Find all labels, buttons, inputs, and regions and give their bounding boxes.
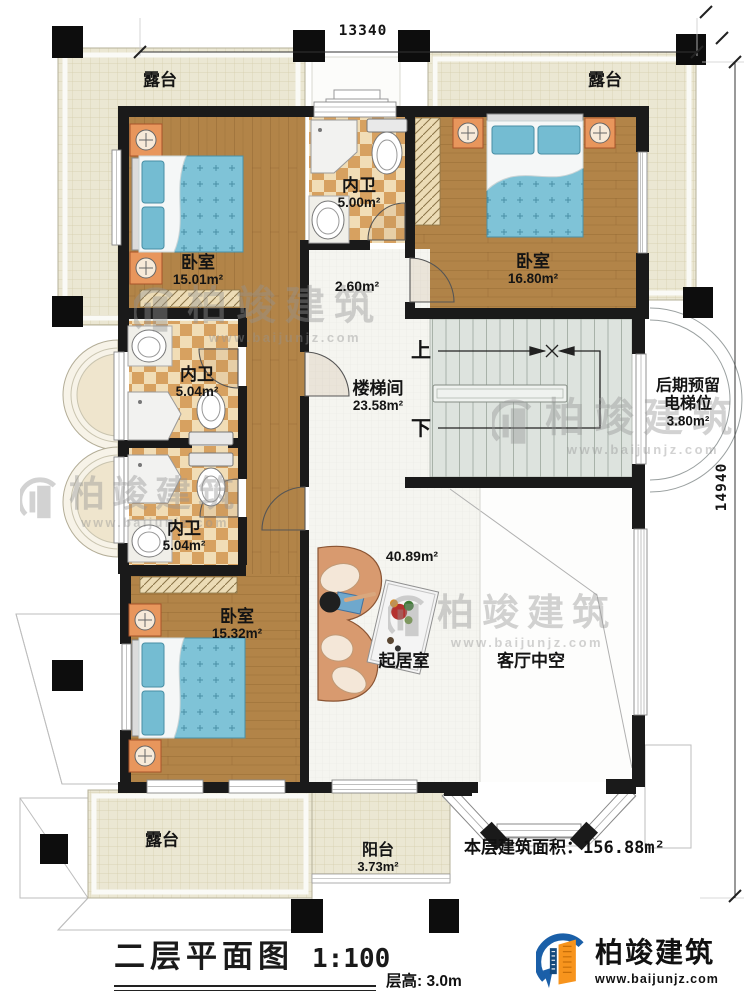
- title-underline: [114, 985, 376, 991]
- label-stairs-down: 下: [411, 418, 431, 440]
- dimension-top: 13340: [339, 23, 388, 39]
- dimension-right: 14940: [714, 463, 730, 512]
- label-living-area: 40.89m²: [386, 549, 438, 565]
- floor-hallway: [246, 309, 305, 575]
- label-terrace-tr: 露台: [588, 70, 622, 89]
- floor-area-summary: 本层建筑面积：156.88m²: [464, 833, 665, 858]
- label-terrace-bottom: 露台: [145, 830, 179, 849]
- floor-height: 层高: 3.0m: [386, 969, 462, 991]
- terrace-bottom: [88, 790, 312, 898]
- label-bedroom-bl: 卧室15.32m²: [212, 607, 262, 641]
- label-stairs-up: 上: [411, 340, 431, 362]
- brand-logo-icon: [536, 931, 588, 993]
- label-corridor-area: 2.60m²: [335, 279, 379, 295]
- label-bedroom-tl: 卧室15.01m²: [173, 253, 223, 287]
- label-balcony: 阳台3.73m²: [357, 842, 398, 874]
- drawing-scale: 1:100: [312, 946, 390, 972]
- label-stairwell: 楼梯间23.58m²: [353, 379, 404, 413]
- round-bay-windows: [63, 340, 118, 557]
- label-elevator: 后期预留电梯位3.80m²: [656, 378, 720, 429]
- floorplan-canvas: 柏竣建筑www.baijunjz.com 柏竣建筑www.baijunjz.co…: [0, 0, 750, 1005]
- label-terrace-tl: 露台: [143, 70, 177, 89]
- brand-url: www.baijunjz.com: [595, 972, 719, 986]
- label-bath-mid-upper: 内卫5.04m²: [176, 365, 219, 399]
- label-living: 起居室: [379, 651, 430, 670]
- label-void: 客厅中空: [497, 651, 565, 670]
- drawing-title: 二层平面图1:100: [114, 941, 390, 972]
- brand-name: 柏竣建筑: [595, 939, 719, 967]
- label-bath-top: 内卫5.00m²: [338, 176, 381, 210]
- brand-logo: 柏竣建筑 www.baijunjz.com: [536, 931, 719, 993]
- floor-void: [480, 487, 632, 782]
- page-title: 二层平面图: [114, 941, 294, 972]
- top-steps: [312, 57, 400, 109]
- stairwell-graphic: [430, 319, 632, 477]
- label-bedroom-tr: 卧室16.80m²: [508, 252, 558, 286]
- label-bath-mid-lower: 内卫5.04m²: [163, 519, 206, 553]
